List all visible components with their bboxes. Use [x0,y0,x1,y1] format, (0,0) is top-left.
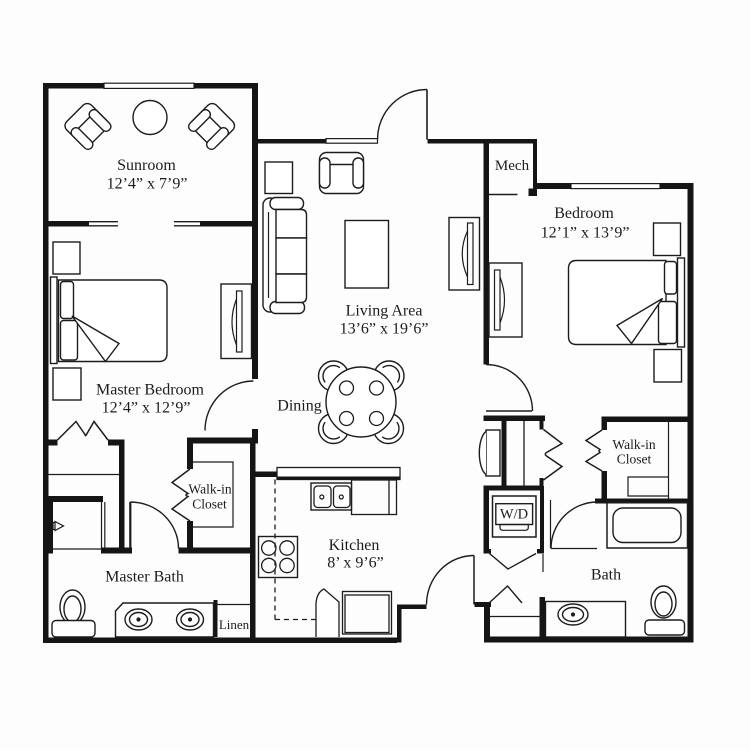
svg-text:W/D: W/D [500,507,528,523]
svg-text:Dining: Dining [277,398,321,415]
svg-text:Closet: Closet [192,497,227,512]
svg-text:Closet: Closet [617,452,652,467]
svg-text:Walk-in: Walk-in [612,437,655,452]
svg-text:Bedroom: Bedroom [554,205,614,222]
svg-text:Linen: Linen [219,617,250,632]
svg-text:Master Bedroom: Master Bedroom [96,382,205,399]
svg-text:12’4” x 7’9”: 12’4” x 7’9” [107,176,188,193]
svg-text:12’1” x 13’9”: 12’1” x 13’9” [541,225,630,242]
svg-text:Walk-in: Walk-in [188,482,231,497]
svg-text:Master Bath: Master Bath [105,569,184,586]
svg-text:13’6” x 19’6”: 13’6” x 19’6” [340,321,429,338]
svg-text:Sunroom: Sunroom [117,157,176,174]
svg-text:Bath: Bath [591,567,621,584]
svg-text:Mech: Mech [495,158,530,174]
svg-text:Kitchen: Kitchen [329,537,380,554]
svg-text:Living Area: Living Area [346,303,423,320]
svg-text:12’4” x 12’9”: 12’4” x 12’9” [102,400,191,417]
svg-text:8’ x 9’6”: 8’ x 9’6” [327,555,384,572]
